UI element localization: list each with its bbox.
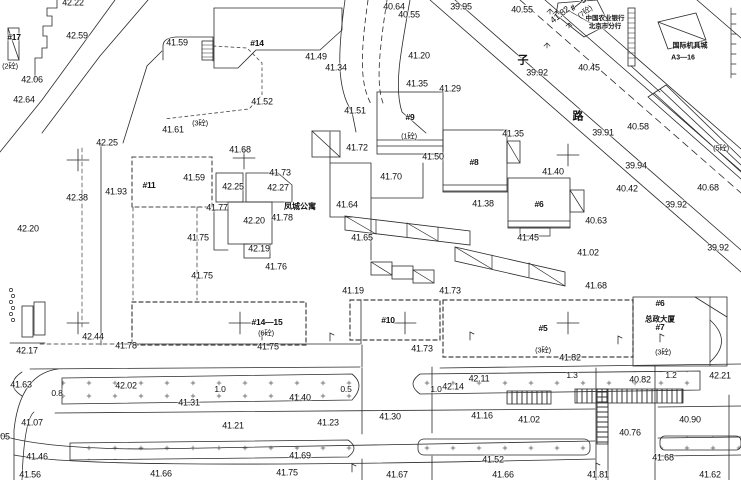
central-compound xyxy=(132,132,565,344)
bottom-building-row xyxy=(40,297,727,366)
diagonal-street xyxy=(430,0,741,272)
top-center-block xyxy=(214,0,426,157)
top-left-block xyxy=(0,0,262,345)
survey-cross-marks xyxy=(67,144,579,334)
plan-linework xyxy=(0,0,741,480)
bottom-roads xyxy=(0,302,741,480)
site-plan-canvas: 42.2242.5941.5942.0642.6442.2541.6141.93… xyxy=(0,0,741,480)
buildings-9-8-6 xyxy=(377,92,584,236)
